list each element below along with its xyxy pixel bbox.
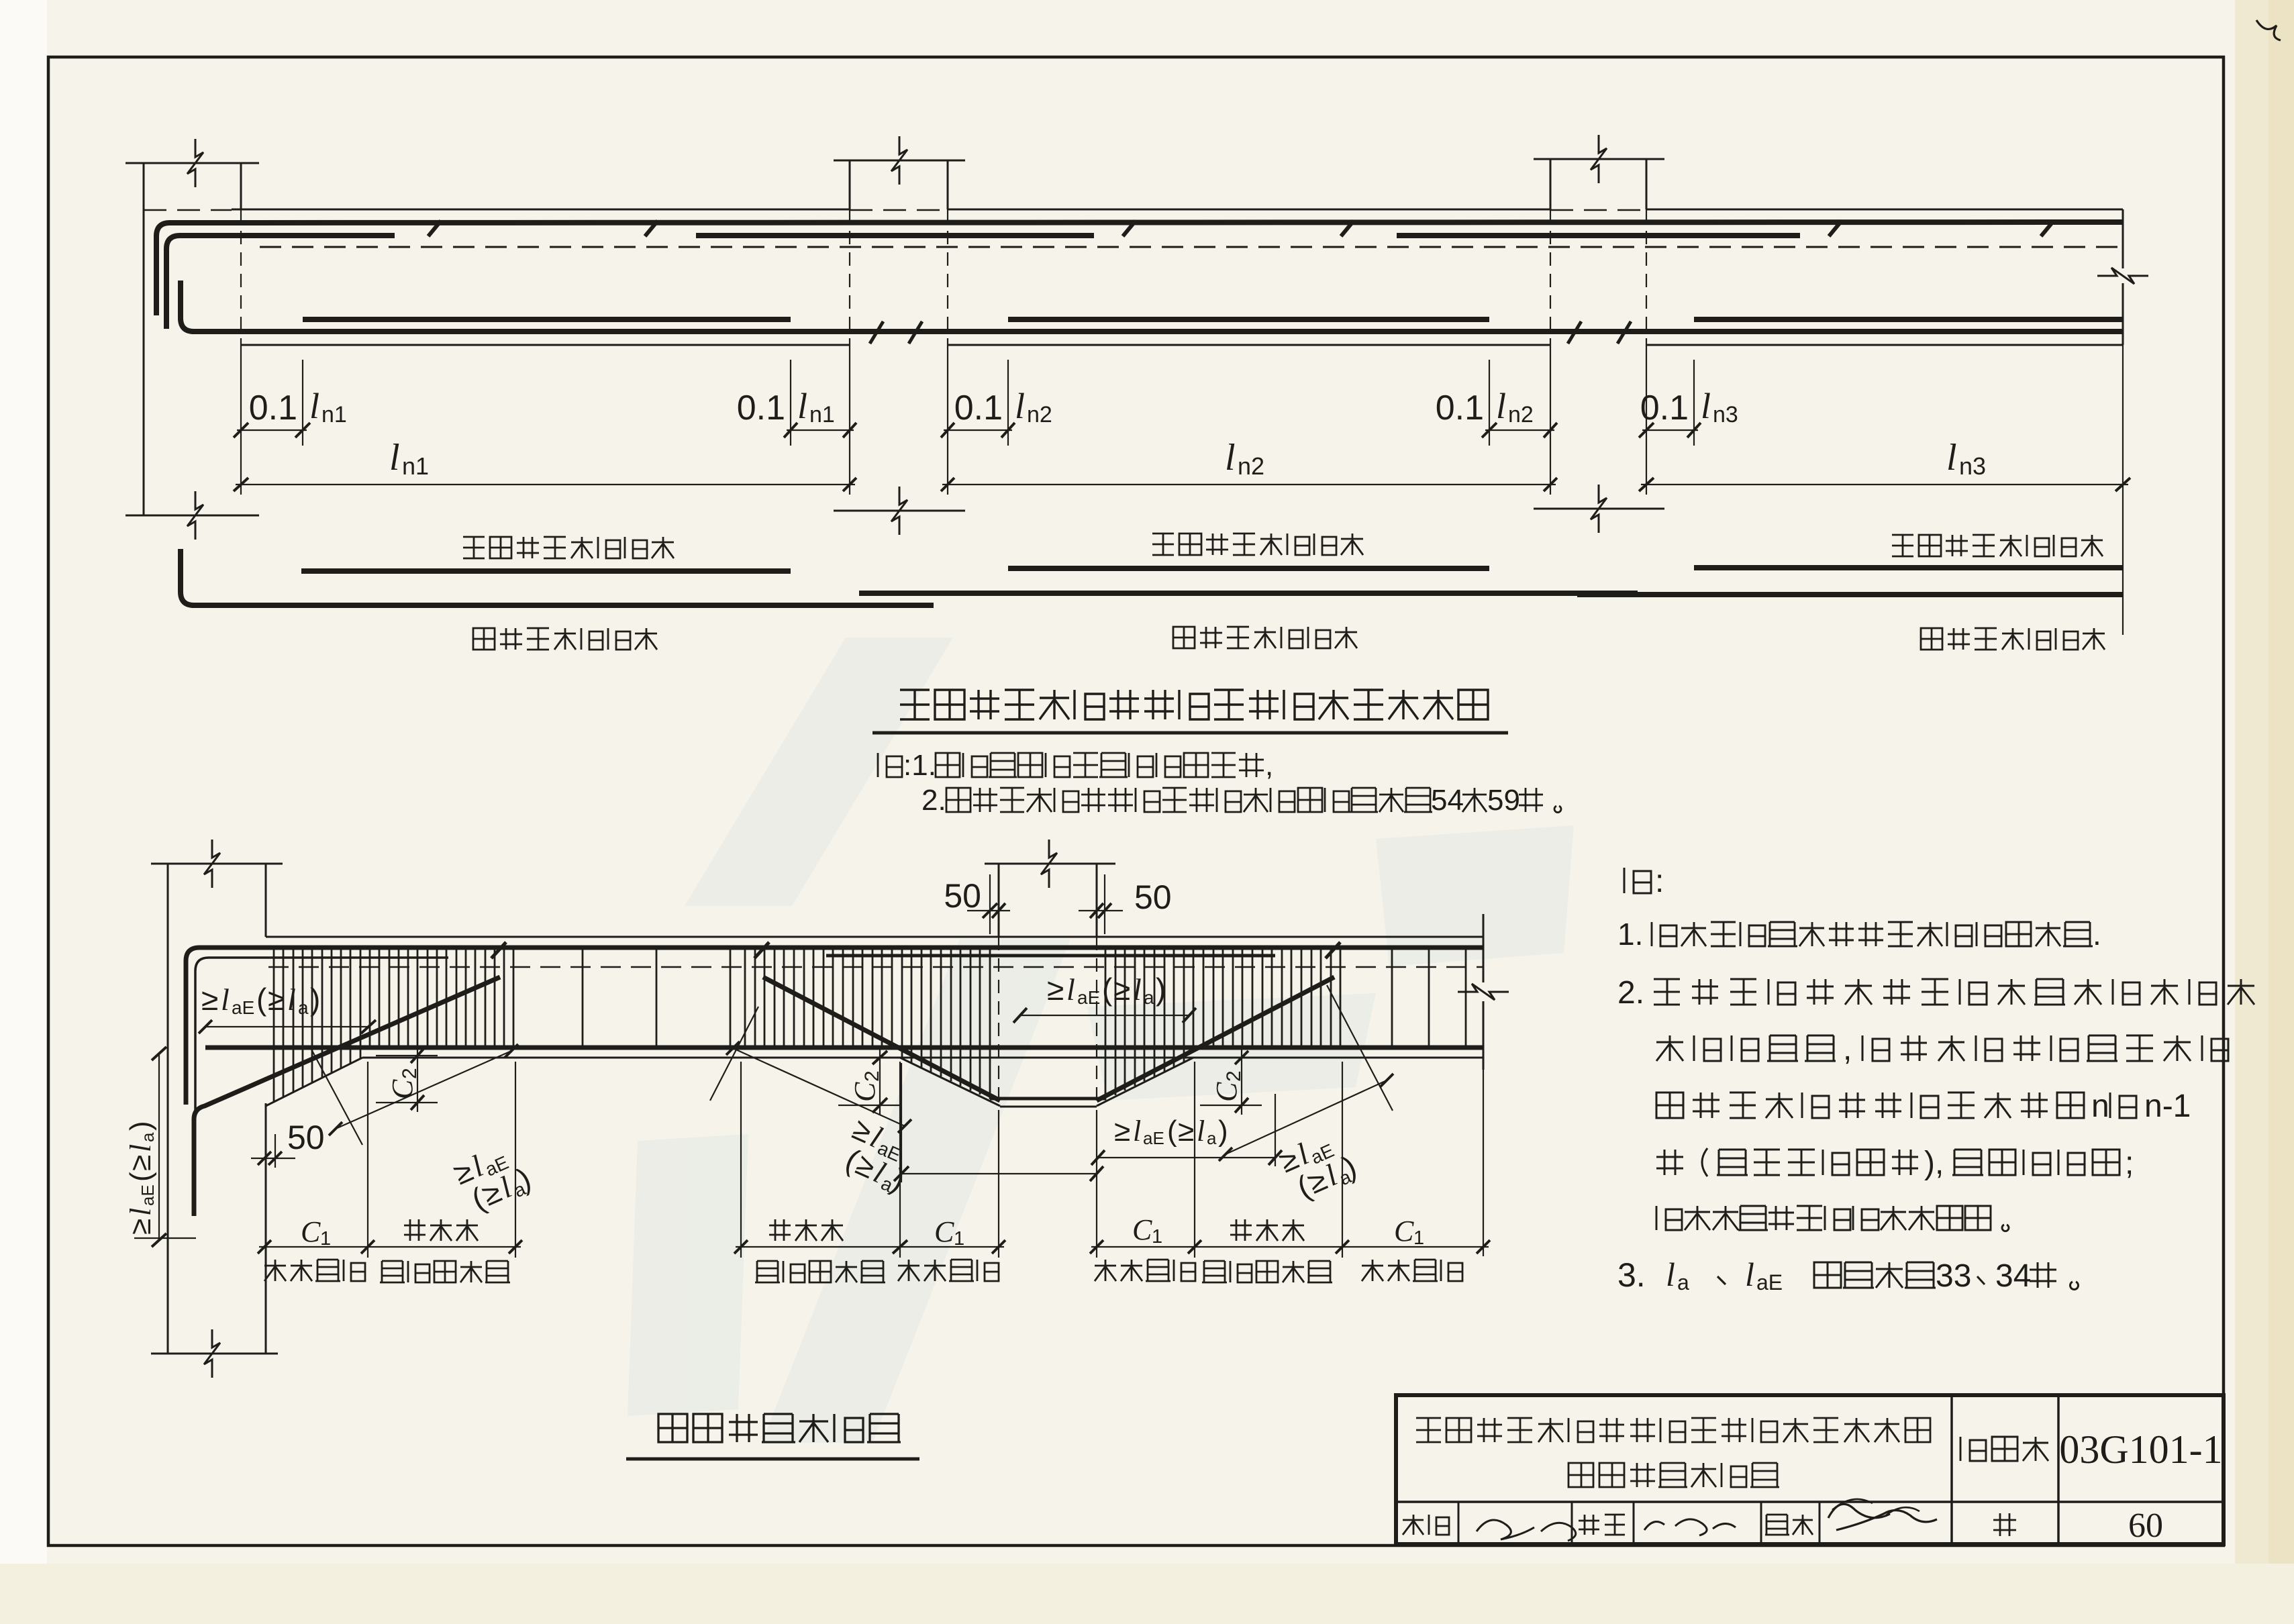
svg-text:(: ( [256, 982, 267, 1017]
svg-text:0.1: 0.1 [1640, 389, 1689, 427]
svg-text:≥: ≥ [268, 982, 285, 1017]
svg-text:l: l [1015, 386, 1025, 426]
svg-text:50: 50 [944, 877, 981, 915]
svg-text:n: n [2091, 1088, 2109, 1124]
svg-text:≥: ≥ [201, 982, 218, 1017]
svg-text::1.: :1. [903, 749, 936, 782]
svg-text:≥: ≥ [1114, 1115, 1130, 1148]
svg-text:a: a [1207, 1128, 1217, 1148]
svg-text:≥: ≥ [124, 1155, 157, 1171]
svg-text:aE: aE [1143, 1128, 1164, 1148]
svg-text:l: l [124, 1144, 157, 1152]
svg-text:l: l [1066, 972, 1075, 1007]
svg-text:,: , [1265, 749, 1273, 782]
svg-text:C: C [934, 1215, 954, 1248]
svg-text:C: C [301, 1215, 321, 1248]
svg-text:a: a [298, 997, 309, 1018]
svg-text:C: C [1210, 1082, 1243, 1102]
svg-text:0.1: 0.1 [737, 389, 785, 427]
svg-text:(: ( [1102, 972, 1113, 1007]
svg-text:aE: aE [232, 997, 254, 1018]
svg-text:l: l [1133, 1115, 1141, 1148]
svg-text:33: 33 [1936, 1258, 1971, 1294]
svg-text:a: a [1677, 1270, 1689, 1295]
svg-text:1: 1 [1152, 1226, 1162, 1248]
svg-text:≥: ≥ [1113, 972, 1130, 1007]
svg-text:n1: n1 [321, 402, 347, 427]
svg-text:2: 2 [399, 1068, 421, 1079]
svg-text:n3: n3 [1959, 452, 1986, 480]
svg-text:1: 1 [320, 1228, 331, 1250]
svg-text:a: a [1144, 987, 1154, 1008]
svg-text:l: l [1701, 386, 1711, 426]
svg-text:1: 1 [954, 1228, 964, 1250]
svg-text:n1: n1 [809, 402, 835, 427]
svg-text:54: 54 [1431, 784, 1464, 817]
svg-text:n3: n3 [1713, 402, 1738, 427]
svg-text:≥: ≥ [124, 1219, 157, 1235]
svg-text:a: a [138, 1132, 158, 1142]
svg-text:l: l [1666, 1256, 1675, 1293]
svg-text:(: ( [124, 1172, 157, 1182]
svg-text:l: l [1496, 386, 1506, 426]
svg-text:l: l [389, 437, 400, 478]
svg-text:l: l [287, 982, 296, 1017]
svg-text:(: ( [1167, 1115, 1177, 1148]
svg-text:C: C [848, 1082, 881, 1102]
svg-text::: : [1655, 864, 1664, 899]
svg-text:1: 1 [1413, 1227, 1424, 1249]
svg-text:50: 50 [287, 1119, 325, 1156]
svg-text:l: l [309, 386, 319, 426]
svg-text:l: l [124, 1208, 157, 1216]
svg-text:2.: 2. [921, 784, 946, 817]
svg-text:): ) [1156, 972, 1166, 1007]
svg-text:3.: 3. [1617, 1256, 1646, 1294]
svg-text:): ) [310, 982, 320, 1017]
svg-text:n2: n2 [1238, 452, 1264, 480]
svg-text:n1: n1 [402, 452, 429, 480]
svg-text:2.: 2. [1617, 975, 1644, 1011]
svg-text:): ) [1218, 1115, 1228, 1148]
svg-text:0.1: 0.1 [249, 389, 297, 427]
svg-text:l: l [221, 982, 230, 1017]
svg-text:,: , [1843, 1031, 1852, 1067]
svg-text:aE: aE [1756, 1270, 1783, 1295]
svg-text:n2: n2 [1027, 402, 1052, 427]
svg-text:59: 59 [1487, 784, 1520, 817]
svg-text:1.: 1. [1617, 917, 1643, 952]
svg-text:): ) [124, 1121, 157, 1131]
svg-text:60: 60 [2128, 1507, 2163, 1545]
svg-text:C: C [386, 1079, 419, 1099]
svg-text:l: l [1225, 437, 1236, 478]
svg-text:;: ; [2125, 1146, 2134, 1181]
svg-text:aE: aE [138, 1184, 158, 1206]
svg-text:03G101-1: 03G101-1 [2059, 1427, 2222, 1472]
svg-text:C: C [1132, 1213, 1152, 1246]
svg-text:2: 2 [861, 1070, 883, 1082]
svg-text:aE: aE [1077, 987, 1100, 1008]
svg-text:l: l [1133, 972, 1142, 1007]
svg-text:0.1: 0.1 [1436, 389, 1484, 427]
svg-text:l: l [1745, 1256, 1754, 1293]
svg-text:l: l [1197, 1115, 1205, 1148]
svg-text:C: C [1394, 1215, 1414, 1248]
svg-text:n2: n2 [1508, 402, 1534, 427]
svg-text:34: 34 [1995, 1258, 2031, 1294]
svg-text:≥: ≥ [1178, 1115, 1194, 1148]
svg-text:≥: ≥ [1047, 972, 1064, 1007]
svg-text:),: ), [1924, 1146, 1944, 1181]
svg-text:50: 50 [1134, 878, 1172, 916]
svg-text:.: . [2093, 917, 2101, 952]
svg-text:l: l [797, 386, 807, 426]
svg-text:0.1: 0.1 [954, 389, 1003, 427]
svg-text:n-1: n-1 [2144, 1088, 2191, 1124]
svg-text:2: 2 [1223, 1070, 1245, 1082]
svg-text:l: l [1946, 437, 1957, 478]
